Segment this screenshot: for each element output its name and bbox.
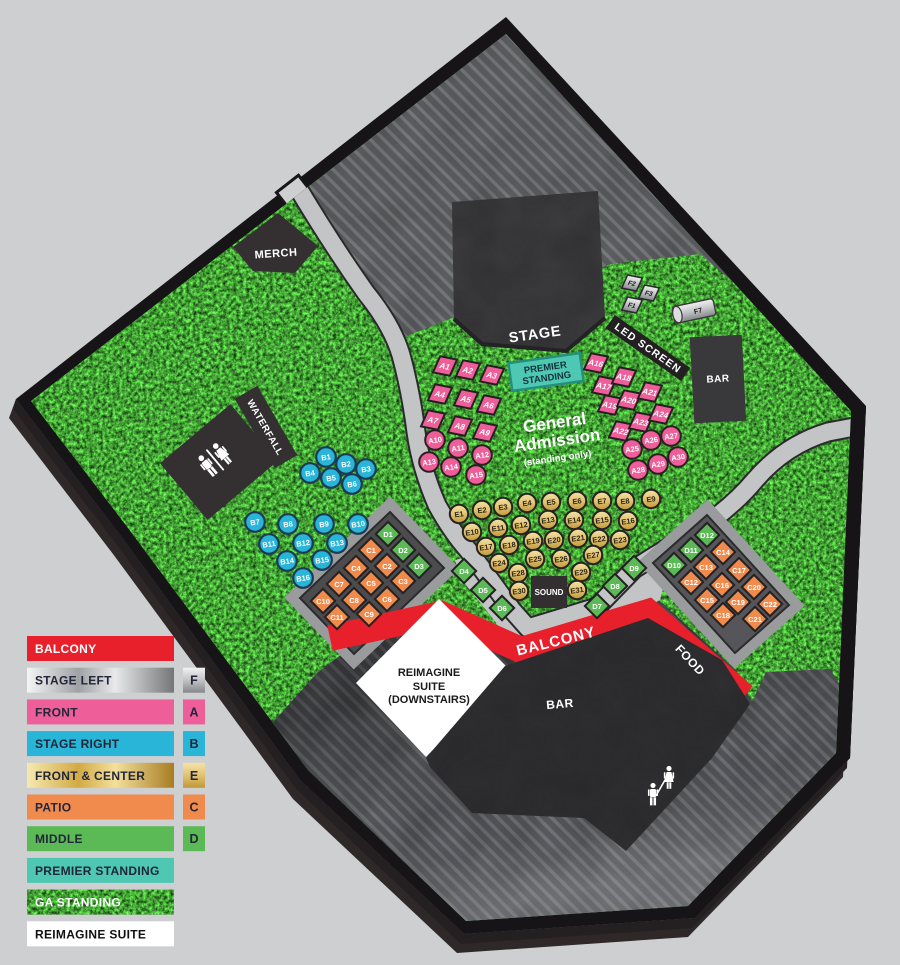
svg-text:B7: B7 bbox=[250, 517, 261, 527]
svg-text:BALCONY: BALCONY bbox=[35, 642, 96, 656]
svg-text:B1: B1 bbox=[321, 452, 332, 462]
svg-text:E15: E15 bbox=[595, 515, 609, 526]
svg-text:E9: E9 bbox=[646, 494, 656, 504]
svg-text:FRONT & CENTER: FRONT & CENTER bbox=[35, 769, 145, 783]
svg-text:E5: E5 bbox=[546, 497, 556, 507]
svg-text:E2: E2 bbox=[477, 505, 487, 515]
svg-text:REIMAGINE: REIMAGINE bbox=[398, 667, 460, 679]
svg-text:B8: B8 bbox=[283, 519, 294, 529]
svg-text:D2: D2 bbox=[398, 546, 408, 555]
svg-text:B10: B10 bbox=[351, 519, 366, 530]
svg-text:E26: E26 bbox=[554, 554, 568, 565]
svg-text:C19: C19 bbox=[731, 598, 745, 607]
svg-text:A27: A27 bbox=[664, 431, 679, 442]
svg-text:B2: B2 bbox=[341, 459, 352, 469]
svg-text:SOUND: SOUND bbox=[535, 588, 564, 597]
svg-text:E1: E1 bbox=[454, 509, 464, 519]
svg-text:E16: E16 bbox=[621, 516, 635, 527]
svg-text:C21: C21 bbox=[748, 615, 762, 624]
svg-text:F: F bbox=[190, 674, 198, 688]
svg-text:D12: D12 bbox=[700, 531, 714, 540]
svg-text:E3: E3 bbox=[498, 502, 508, 512]
svg-text:D9: D9 bbox=[629, 564, 639, 573]
svg-text:A30: A30 bbox=[671, 452, 686, 463]
svg-text:E11: E11 bbox=[491, 523, 505, 534]
svg-text:C9: C9 bbox=[364, 610, 374, 619]
svg-text:MIDDLE: MIDDLE bbox=[35, 832, 83, 846]
svg-text:B13: B13 bbox=[330, 538, 345, 549]
svg-text:C3: C3 bbox=[398, 577, 408, 586]
svg-text:(DOWNSTAIRS): (DOWNSTAIRS) bbox=[388, 694, 470, 706]
svg-text:B9: B9 bbox=[319, 519, 330, 529]
svg-text:C15: C15 bbox=[700, 596, 714, 605]
svg-text:E30: E30 bbox=[512, 586, 526, 597]
svg-text:C16: C16 bbox=[715, 581, 729, 590]
svg-text:E22: E22 bbox=[592, 534, 606, 545]
svg-text:BAR: BAR bbox=[546, 696, 575, 712]
svg-text:C12: C12 bbox=[684, 578, 698, 587]
svg-text:C13: C13 bbox=[699, 563, 713, 572]
svg-text:C14: C14 bbox=[716, 548, 731, 557]
svg-text:C11: C11 bbox=[330, 613, 343, 622]
svg-text:E29: E29 bbox=[574, 567, 588, 578]
svg-text:A10: A10 bbox=[428, 435, 443, 446]
svg-text:B5: B5 bbox=[326, 473, 337, 483]
svg-text:D6: D6 bbox=[497, 604, 507, 613]
svg-text:D8: D8 bbox=[610, 582, 620, 591]
svg-text:C1: C1 bbox=[366, 546, 376, 555]
svg-text:FRONT: FRONT bbox=[35, 705, 78, 719]
svg-text:D10: D10 bbox=[667, 561, 681, 570]
svg-text:E28: E28 bbox=[511, 568, 525, 579]
svg-text:D7: D7 bbox=[592, 602, 602, 611]
svg-text:E: E bbox=[190, 769, 198, 783]
svg-text:A13: A13 bbox=[422, 457, 437, 468]
svg-text:REIMAGINE SUITE: REIMAGINE SUITE bbox=[35, 927, 146, 941]
svg-text:PATIO: PATIO bbox=[35, 801, 71, 815]
svg-text:B6: B6 bbox=[347, 479, 358, 489]
svg-text:B3: B3 bbox=[361, 464, 372, 474]
svg-text:D: D bbox=[189, 832, 198, 846]
svg-text:C18: C18 bbox=[716, 611, 730, 620]
svg-text:E21: E21 bbox=[571, 533, 585, 544]
svg-text:C5: C5 bbox=[366, 579, 376, 588]
svg-text:C2: C2 bbox=[382, 562, 392, 571]
svg-text:A12: A12 bbox=[475, 450, 490, 461]
svg-text:BAR: BAR bbox=[706, 373, 730, 385]
svg-text:E7: E7 bbox=[597, 496, 607, 506]
svg-text:STAGE RIGHT: STAGE RIGHT bbox=[35, 737, 120, 751]
svg-text:E8: E8 bbox=[620, 496, 630, 506]
svg-text:A29: A29 bbox=[651, 459, 666, 470]
svg-text:E31: E31 bbox=[570, 585, 584, 596]
svg-text:A25: A25 bbox=[625, 444, 640, 455]
svg-text:C17: C17 bbox=[732, 566, 746, 575]
svg-text:A26: A26 bbox=[644, 435, 659, 446]
svg-text:C7: C7 bbox=[334, 580, 344, 589]
svg-text:E20: E20 bbox=[547, 535, 561, 546]
svg-text:E6: E6 bbox=[572, 496, 582, 506]
svg-text:D4: D4 bbox=[459, 567, 469, 576]
svg-text:E25: E25 bbox=[528, 554, 542, 565]
svg-text:STAGE LEFT: STAGE LEFT bbox=[35, 674, 112, 688]
svg-text:C: C bbox=[189, 801, 198, 815]
svg-text:A11: A11 bbox=[451, 443, 465, 454]
svg-text:B11: B11 bbox=[262, 539, 276, 550]
svg-text:A28: A28 bbox=[631, 465, 646, 476]
svg-text:C22: C22 bbox=[763, 600, 777, 609]
svg-text:B16: B16 bbox=[296, 573, 311, 584]
svg-text:B15: B15 bbox=[315, 555, 330, 566]
svg-text:SUITE: SUITE bbox=[413, 681, 445, 693]
svg-text:GA STANDING: GA STANDING bbox=[35, 896, 121, 910]
svg-text:E13: E13 bbox=[541, 515, 555, 526]
svg-text:B12: B12 bbox=[296, 538, 311, 549]
svg-text:D3: D3 bbox=[414, 562, 424, 571]
svg-text:A15: A15 bbox=[469, 470, 484, 481]
svg-text:E10: E10 bbox=[465, 527, 479, 538]
svg-text:E12: E12 bbox=[514, 520, 528, 531]
svg-text:B: B bbox=[189, 737, 198, 751]
svg-text:E19: E19 bbox=[526, 536, 540, 547]
svg-text:E23: E23 bbox=[613, 535, 627, 546]
svg-text:E27: E27 bbox=[586, 550, 600, 561]
svg-text:C4: C4 bbox=[351, 564, 361, 573]
svg-text:C20: C20 bbox=[747, 583, 761, 592]
svg-text:D11: D11 bbox=[684, 546, 697, 555]
svg-text:C8: C8 bbox=[349, 596, 359, 605]
svg-text:PREMIER STANDING: PREMIER STANDING bbox=[35, 864, 160, 878]
svg-text:D5: D5 bbox=[478, 586, 488, 595]
svg-text:D1: D1 bbox=[383, 530, 393, 539]
svg-text:C6: C6 bbox=[382, 595, 392, 604]
svg-text:E18: E18 bbox=[502, 540, 516, 551]
svg-text:A: A bbox=[189, 705, 198, 719]
svg-text:E17: E17 bbox=[479, 542, 493, 553]
svg-text:C10: C10 bbox=[316, 597, 330, 606]
